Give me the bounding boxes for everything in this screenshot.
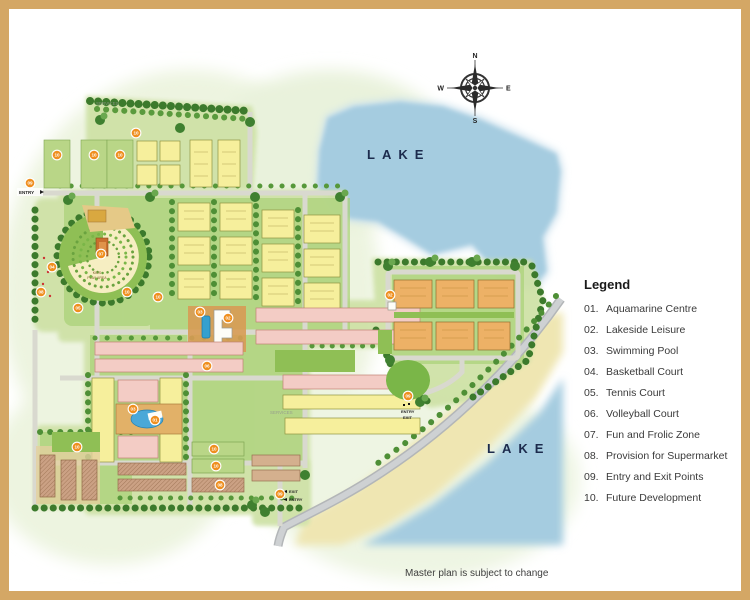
legend-item-label: Future Development: [606, 493, 701, 504]
svg-text:10: 10: [74, 445, 80, 450]
legend-item-number: 06.: [584, 409, 606, 420]
svg-text:10: 10: [91, 153, 97, 158]
legend-item-label: Tennis Court: [606, 388, 665, 399]
map-marker: 09: [25, 178, 36, 189]
legend-item-label: Swimming Pool: [606, 346, 678, 357]
map-marker: 05: [73, 303, 84, 314]
legend-item-02: 02.Lakeside Leisure: [584, 325, 739, 336]
svg-text:08: 08: [38, 290, 44, 295]
svg-text:10: 10: [133, 131, 139, 136]
map-marker: 10: [153, 292, 164, 303]
legend-item-06: 06.Volleyball Court: [584, 409, 739, 420]
kids-play-area-label-1: KIDS: [93, 271, 102, 275]
legend-item-number: 04.: [584, 367, 606, 378]
legend-item-10: 10.Future Development: [584, 493, 739, 504]
svg-text:01: 01: [152, 418, 158, 423]
legend-item-08: 08.Provision for Supermarket: [584, 451, 739, 462]
map-marker: 04: [47, 262, 58, 273]
legend-item-07: 07.Fun and Frolic Zone: [584, 430, 739, 441]
map-marker: 07: [96, 249, 107, 260]
lake-label-top: LAKE: [367, 147, 430, 162]
disclaimer-note: Master plan is subject to change: [405, 568, 548, 579]
svg-text:10: 10: [124, 290, 130, 295]
entry-exit-right-1: ENTRY: [401, 409, 415, 414]
map-marker: 01: [150, 415, 161, 426]
services-label-top: SERVICES: [96, 101, 119, 106]
legend: Legend 01.Aquamarine Centre 02.Lakeside …: [584, 277, 739, 514]
svg-text:10: 10: [117, 153, 123, 158]
legend-item-03: 03.Swimming Pool: [584, 346, 739, 357]
legend-item-05: 05.Tennis Court: [584, 388, 739, 399]
legend-item-label: Provision for Supermarket: [606, 451, 727, 462]
svg-text:10: 10: [211, 447, 217, 452]
map-marker: 10: [115, 150, 126, 161]
legend-item-label: Lakeside Leisure: [606, 325, 685, 336]
svg-text:02: 02: [387, 293, 393, 298]
map-marker: 08: [215, 480, 226, 491]
svg-text:10: 10: [213, 464, 219, 469]
legend-item-number: 08.: [584, 451, 606, 462]
map-marker: 10: [122, 287, 133, 298]
legend-title: Legend: [584, 277, 739, 292]
legend-item-number: 03.: [584, 346, 606, 357]
map-marker: 06: [202, 361, 213, 372]
map-marker: 10: [209, 444, 220, 455]
map-marker: 02: [223, 313, 234, 324]
aquamarine-centre-cluster: [92, 378, 182, 462]
entry-label-left: ENTRY: [19, 190, 34, 195]
legend-item-number: 01.: [584, 304, 606, 315]
exit-label-bottom: EXIT: [289, 489, 298, 494]
compass-s: S: [473, 118, 478, 125]
legend-item-04: 04.Basketball Court: [584, 367, 739, 378]
svg-text:09: 09: [405, 394, 411, 399]
legend-item-label: Fun and Frolic Zone: [606, 430, 700, 441]
map-marker: 08: [36, 287, 47, 298]
legend-item-label: Volleyball Court: [606, 409, 679, 420]
compass-e: E: [506, 86, 511, 93]
map-marker: 10: [72, 442, 83, 453]
svg-text:06: 06: [204, 364, 210, 369]
map-marker: 10: [89, 150, 100, 161]
svg-text:03: 03: [197, 310, 203, 315]
legend-item-label: Aquamarine Centre: [606, 304, 697, 315]
svg-text:04: 04: [49, 265, 55, 270]
map-marker: 10: [211, 461, 222, 472]
compass-w: W: [437, 86, 444, 93]
legend-item-number: 09.: [584, 472, 606, 483]
svg-text:02: 02: [225, 316, 231, 321]
svg-text:10: 10: [54, 153, 60, 158]
map-marker: 02: [385, 290, 396, 301]
compass-n: N: [472, 53, 477, 60]
legend-item-number: 07.: [584, 430, 606, 441]
lake-label-bottom: LAKE: [487, 441, 550, 456]
map-marker: 03: [128, 404, 139, 415]
map-marker: 09: [403, 391, 414, 402]
future-development-strips: [44, 140, 133, 188]
services-label-mid: SERVICES: [270, 410, 293, 415]
svg-text:09: 09: [27, 181, 33, 186]
map-marker: 10: [131, 128, 142, 139]
legend-item-01: 01.Aquamarine Centre: [584, 304, 739, 315]
legend-item-number: 02.: [584, 325, 606, 336]
map-marker: 09: [275, 489, 286, 500]
svg-text:10: 10: [155, 295, 161, 300]
legend-item-label: Basketball Court: [606, 367, 683, 378]
svg-text:08: 08: [217, 483, 223, 488]
entry-label-bottom: ENTRY: [289, 497, 303, 502]
entry-exit-right-2: EXIT: [403, 415, 412, 420]
svg-text:05: 05: [75, 306, 81, 311]
svg-text:09: 09: [277, 492, 283, 497]
legend-item-label: Entry and Exit Points: [606, 472, 703, 483]
map-marker: 03: [195, 307, 206, 318]
svg-text:03: 03: [130, 407, 136, 412]
map-marker: 10: [52, 150, 63, 161]
legend-item-number: 05.: [584, 388, 606, 399]
legend-item-09: 09.Entry and Exit Points: [584, 472, 739, 483]
kids-play-area-label-2: PLAY AREA: [87, 276, 107, 280]
svg-text:07: 07: [98, 252, 104, 257]
legend-item-number: 10.: [584, 493, 606, 504]
